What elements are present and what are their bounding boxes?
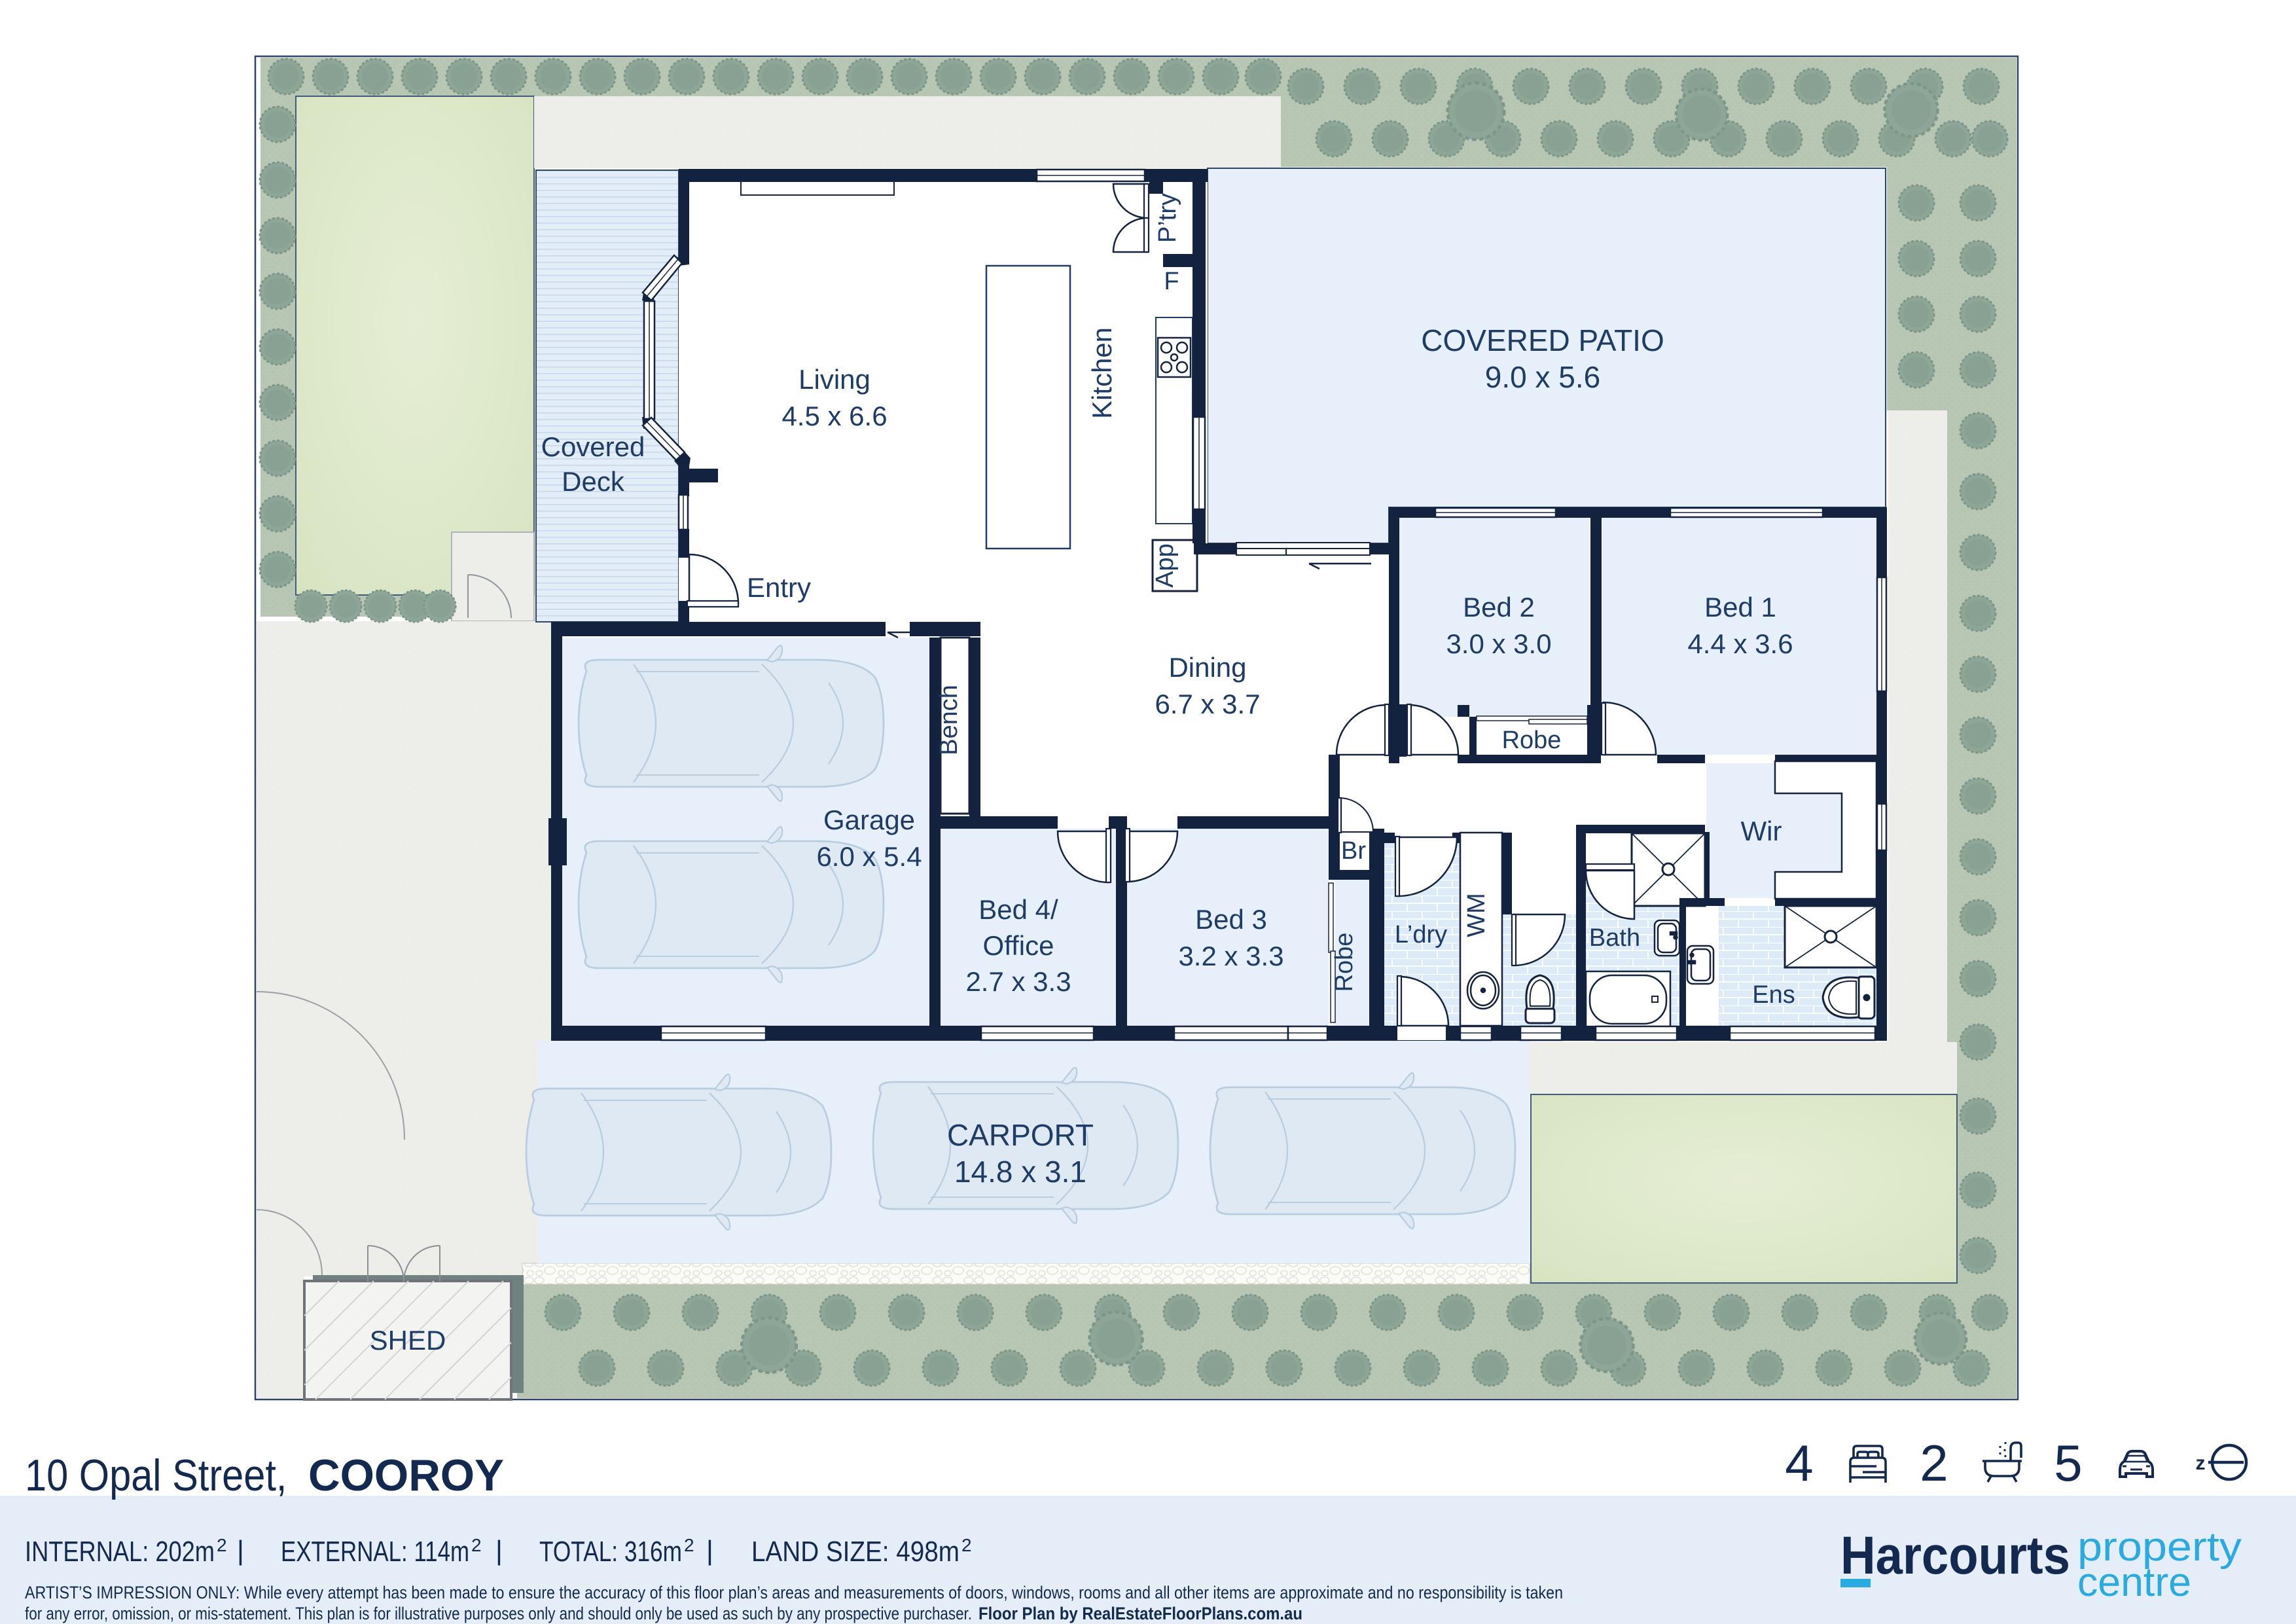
svg-text:2: 2 <box>217 1535 227 1555</box>
svg-text:Harcourts: Harcourts <box>1840 1526 2070 1585</box>
svg-text:4.4 x 3.6: 4.4 x 3.6 <box>1687 628 1793 659</box>
svg-text:|: | <box>495 1535 503 1566</box>
svg-text:6.7 x 3.7: 6.7 x 3.7 <box>1155 689 1260 719</box>
svg-text:Deck: Deck <box>562 466 625 497</box>
svg-text:2.7 x 3.3: 2.7 x 3.3 <box>965 966 1071 997</box>
svg-text:Wir: Wir <box>1741 816 1782 846</box>
svg-text:EXTERNAL: 114m: EXTERNAL: 114m <box>281 1536 469 1568</box>
svg-text:3.0 x 3.0: 3.0 x 3.0 <box>1446 628 1551 659</box>
svg-text:INTERNAL: 202m: INTERNAL: 202m <box>25 1536 215 1568</box>
svg-text:14.8 x 3.1: 14.8 x 3.1 <box>954 1155 1086 1189</box>
svg-text:App: App <box>1151 543 1179 588</box>
svg-text:Garage: Garage <box>823 804 915 835</box>
svg-text:Bed 4/: Bed 4/ <box>978 894 1058 925</box>
svg-text:2: 2 <box>471 1535 482 1555</box>
svg-text:2: 2 <box>1920 1434 1948 1492</box>
svg-text:|: | <box>237 1535 244 1566</box>
svg-text:Living: Living <box>798 364 870 395</box>
svg-text:Bed 2: Bed 2 <box>1463 592 1535 623</box>
svg-text:Kitchen: Kitchen <box>1086 327 1117 419</box>
svg-text:5: 5 <box>2054 1434 2082 1492</box>
svg-text:Bath: Bath <box>1589 924 1640 952</box>
svg-text:CARPORT: CARPORT <box>947 1118 1094 1152</box>
svg-text:4: 4 <box>1785 1434 1813 1492</box>
svg-text:Bed 3: Bed 3 <box>1195 904 1267 935</box>
svg-text:for any error, omission, or mi: for any error, omission, or mis-statemen… <box>25 1604 972 1623</box>
svg-text:10 Opal Street, COOROY: 10 Opal Street, COOROY <box>25 1451 504 1500</box>
svg-text:F: F <box>1164 268 1179 295</box>
svg-text:LAND SIZE: 498m: LAND SIZE: 498m <box>751 1536 960 1568</box>
svg-text:Entry: Entry <box>747 572 811 603</box>
svg-text:Bench: Bench <box>935 685 963 755</box>
svg-text:Office: Office <box>983 930 1054 961</box>
svg-text:WM: WM <box>1463 893 1490 937</box>
svg-text:|: | <box>706 1535 713 1566</box>
svg-text:L’dry: L’dry <box>1395 921 1447 948</box>
svg-text:Ens: Ens <box>1752 981 1795 1009</box>
svg-text:ARTIST’S IMPRESSION ONLY: Whil: ARTIST’S IMPRESSION ONLY: While every at… <box>25 1583 1563 1602</box>
svg-text:z: z <box>2196 1453 2206 1474</box>
svg-text:P’try: P’try <box>1154 193 1181 243</box>
svg-text:TOTAL: 316m: TOTAL: 316m <box>539 1536 682 1568</box>
svg-text:Covered: Covered <box>541 431 645 462</box>
svg-text:SHED: SHED <box>370 1325 446 1356</box>
svg-text:Floor Plan by RealEstateFloorP: Floor Plan by RealEstateFloorPlans.com.a… <box>978 1604 1302 1623</box>
svg-text:9.0 x 5.6: 9.0 x 5.6 <box>1485 360 1600 394</box>
svg-text:2: 2 <box>684 1535 694 1555</box>
svg-text:Bed 1: Bed 1 <box>1704 592 1776 623</box>
svg-text:3.2 x 3.3: 3.2 x 3.3 <box>1178 941 1283 971</box>
svg-text:Robe: Robe <box>1502 727 1562 754</box>
svg-text:COVERED PATIO: COVERED PATIO <box>1421 323 1664 357</box>
svg-text:2: 2 <box>961 1535 972 1555</box>
svg-text:6.0 x 5.4: 6.0 x 5.4 <box>816 841 922 872</box>
svg-text:Dining: Dining <box>1168 652 1246 683</box>
svg-text:4.5 x 6.6: 4.5 x 6.6 <box>781 401 887 431</box>
svg-text:Robe: Robe <box>1331 933 1358 992</box>
svg-text:Br: Br <box>1341 837 1366 865</box>
svg-text:centre: centre <box>2077 1560 2191 1605</box>
